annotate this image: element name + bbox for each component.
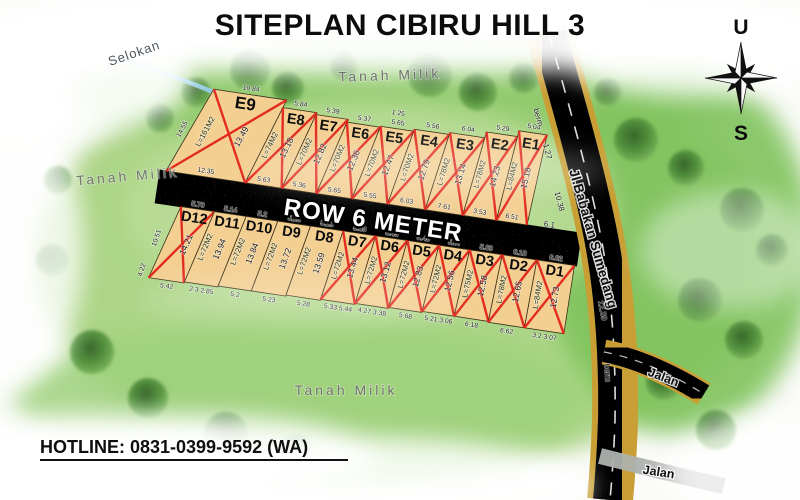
compass-north: U [733,16,748,39]
plot-d9-label: D9 [281,223,302,242]
plot-d1-label: D1 [544,262,565,281]
tanah-milik-bottom: Tanah Milik [294,382,397,398]
plot-d2-label: D2 [508,257,529,276]
plot-e7-label: E7 [318,117,338,135]
plot-d7-label: D7 [347,233,368,252]
compass-south: S [734,122,748,145]
plot-d5-label: D5 [411,242,432,261]
plot-d6-label: D6 [379,238,400,257]
plot-d3-label: D3 [474,252,495,271]
plot-e8-label: E8 [286,111,306,129]
hotline-label: HOTLINE: 0831-0399-9592 (WA) [40,437,308,457]
plot-d8-label: D8 [314,228,335,247]
plot-d4-label: D4 [442,247,463,266]
road-dim-61: 6.1 [543,219,556,230]
berm-label-bottom: berm [602,363,612,382]
plot-e9-label: E9 [234,93,257,115]
plot-d10-top-dim: 5.2 [257,211,268,219]
plot-e6-label: E6 [350,125,370,143]
siteplan-canvas: E9L=161M213.4910.8412.3514.55E8L=74M213.… [0,0,800,500]
page-title: SITEPLAN CIBIRU HILL 3 [215,9,585,42]
